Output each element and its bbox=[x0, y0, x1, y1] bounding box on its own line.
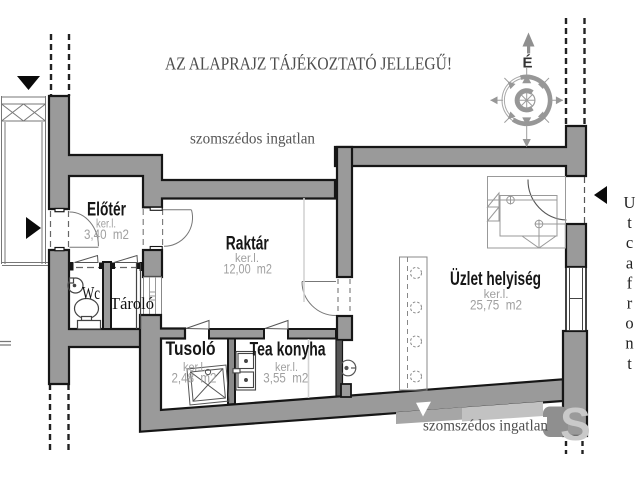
svg-text:Tároló: Tároló bbox=[110, 294, 154, 313]
svg-text:a: a bbox=[626, 253, 634, 272]
svg-text:r: r bbox=[627, 294, 633, 313]
svg-text:f: f bbox=[627, 273, 633, 292]
svg-text:Tea konyha: Tea konyha bbox=[250, 340, 326, 361]
svg-text:Előtér: Előtér bbox=[87, 200, 126, 221]
svg-text:Wc: Wc bbox=[82, 283, 100, 303]
svg-text:szomszédos ingatlan: szomszédos ingatlan bbox=[423, 418, 548, 435]
svg-text:szomszédos ingatlan: szomszédos ingatlan bbox=[190, 131, 315, 148]
svg-text:t: t bbox=[627, 354, 632, 373]
svg-text:3,55 m2: 3,55 m2 bbox=[263, 370, 308, 386]
svg-text:3,40 m2: 3,40 m2 bbox=[84, 226, 129, 242]
svg-text:2,48 m2: 2,48 m2 bbox=[172, 370, 217, 386]
svg-text:25,75 m2: 25,75 m2 bbox=[470, 297, 522, 313]
svg-text:AZ ALAPRAJZ TÁJÉKOZTATÓ JELLEG: AZ ALAPRAJZ TÁJÉKOZTATÓ JELLEGŰ! bbox=[165, 53, 452, 74]
svg-text:n: n bbox=[625, 334, 633, 353]
svg-text:o: o bbox=[625, 314, 633, 333]
svg-text:É: É bbox=[522, 55, 532, 72]
svg-text:12,00 m2: 12,00 m2 bbox=[223, 261, 272, 277]
svg-text:t: t bbox=[627, 213, 632, 232]
svg-text:U: U bbox=[624, 193, 636, 212]
svg-text:Raktár: Raktár bbox=[226, 233, 269, 255]
svg-text:Tusoló: Tusoló bbox=[166, 339, 216, 360]
svg-text:S: S bbox=[560, 398, 591, 450]
svg-text:c: c bbox=[626, 233, 633, 252]
svg-text:Üzlet helyiség: Üzlet helyiség bbox=[450, 269, 541, 290]
